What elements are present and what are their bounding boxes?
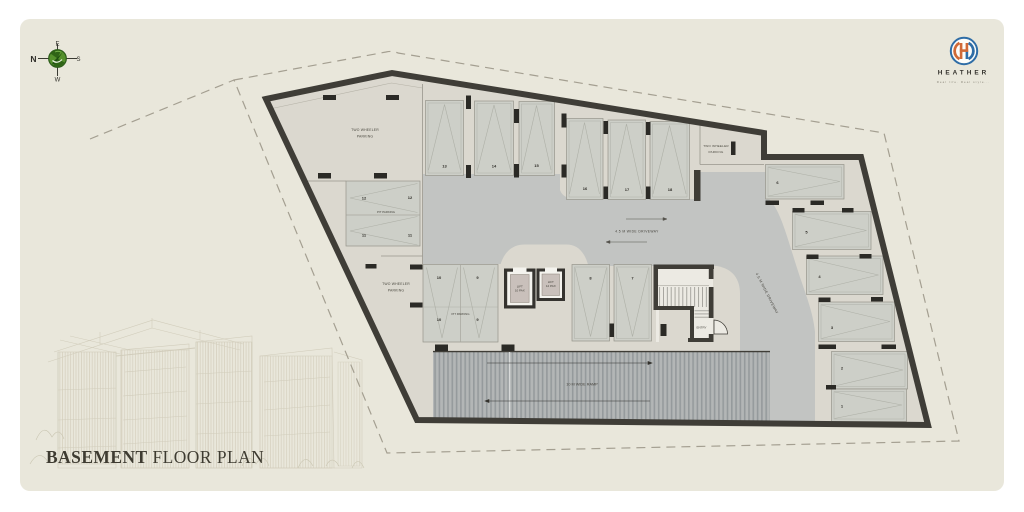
svg-text:10 M WIDE RAMP: 10 M WIDE RAMP (566, 383, 598, 387)
svg-text:HEATHER: HEATHER (938, 69, 989, 76)
svg-text:16: 16 (583, 186, 588, 191)
svg-text:17: 17 (625, 187, 630, 192)
svg-text:TWO WHEELER: TWO WHEELER (703, 144, 729, 148)
svg-text:S: S (76, 57, 80, 63)
svg-text:10: 10 (437, 317, 442, 322)
svg-text:14: 14 (492, 164, 497, 169)
svg-text:N: N (30, 54, 36, 64)
svg-text:BASEMENT FLOOR PLAN: BASEMENT FLOOR PLAN (46, 447, 264, 467)
svg-text:10: 10 (437, 275, 442, 280)
svg-text:12 PAX: 12 PAX (546, 284, 556, 288)
svg-text:12: 12 (362, 196, 367, 201)
svg-text:W: W (55, 78, 61, 84)
svg-text:PIT PARKING: PIT PARKING (451, 312, 470, 316)
svg-text:18: 18 (668, 187, 673, 192)
svg-text:ENTRY: ENTRY (696, 326, 706, 330)
svg-text:13: 13 (442, 164, 447, 169)
svg-text:E: E (55, 42, 59, 48)
svg-text:12: 12 (408, 195, 413, 200)
svg-text:PARKING: PARKING (708, 150, 723, 154)
svg-text:15: 15 (534, 163, 539, 168)
svg-text:TWO WHEELER: TWO WHEELER (351, 128, 379, 132)
svg-text:10 PAX: 10 PAX (515, 289, 525, 293)
svg-text:Real life. Real style...: Real life. Real style... (937, 80, 991, 84)
svg-text:PARKING: PARKING (357, 135, 374, 139)
svg-text:TWO WHEELER: TWO WHEELER (382, 282, 410, 286)
svg-text:PARKING: PARKING (388, 289, 405, 293)
svg-text:4.5 M WIDE DRIVEWAY: 4.5 M WIDE DRIVEWAY (615, 230, 659, 234)
svg-text:PIT PARKING: PIT PARKING (377, 210, 396, 214)
